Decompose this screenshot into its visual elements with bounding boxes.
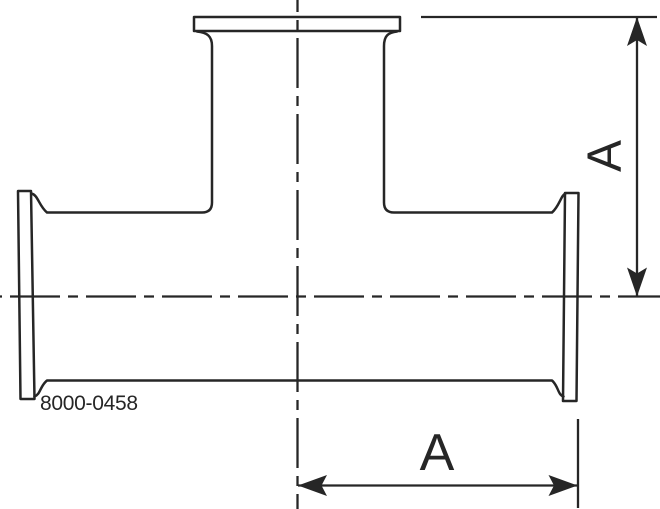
dimension-label-vertical: A [579,140,632,172]
left-ferrule-flange [18,191,35,399]
part-number: 8000-0458 [40,392,138,415]
dimension-label-horizontal: A [420,424,455,482]
drawing-canvas: A A 8000-0458 [0,0,660,509]
technical-drawing: A A 8000-0458 [0,0,660,509]
